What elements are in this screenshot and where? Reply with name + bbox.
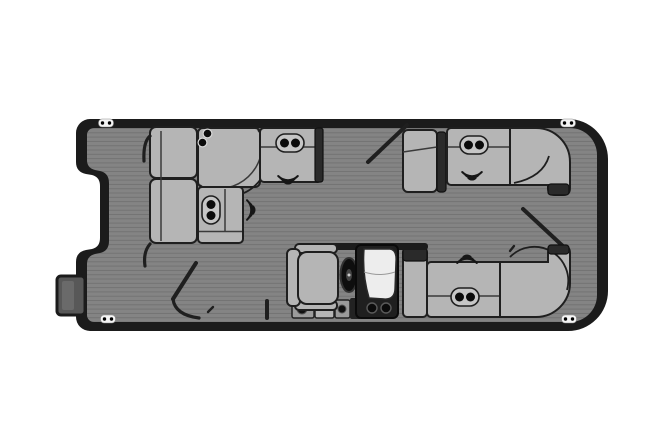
cupholder-icon bbox=[460, 136, 488, 154]
boarding-ladder bbox=[57, 276, 85, 315]
aft-top-couch-group bbox=[403, 128, 570, 195]
side-bench-lower bbox=[150, 179, 197, 243]
bow-top-bench-armrest bbox=[315, 128, 323, 182]
pontoon-floorplan bbox=[0, 0, 669, 446]
side-bench-upper bbox=[150, 127, 197, 178]
steering-wheel-center bbox=[348, 274, 351, 277]
cleat-icon bbox=[101, 315, 116, 323]
cupholder-icon bbox=[451, 288, 479, 306]
floorplan-canvas bbox=[0, 0, 669, 446]
cleat-icon bbox=[99, 119, 114, 127]
aft-bottom-armrest bbox=[548, 245, 569, 254]
cleat-icon bbox=[562, 315, 577, 323]
captain-chair-seat bbox=[298, 252, 338, 304]
cupholder-icon bbox=[202, 196, 220, 224]
aft-iso-seat-armrest bbox=[437, 132, 446, 192]
cleat-icon bbox=[561, 119, 576, 127]
aft-iso-seat bbox=[403, 130, 437, 192]
step-box-3-cup bbox=[338, 305, 346, 313]
aft-top-armrest bbox=[548, 184, 569, 195]
cupholder-icon bbox=[276, 134, 304, 152]
